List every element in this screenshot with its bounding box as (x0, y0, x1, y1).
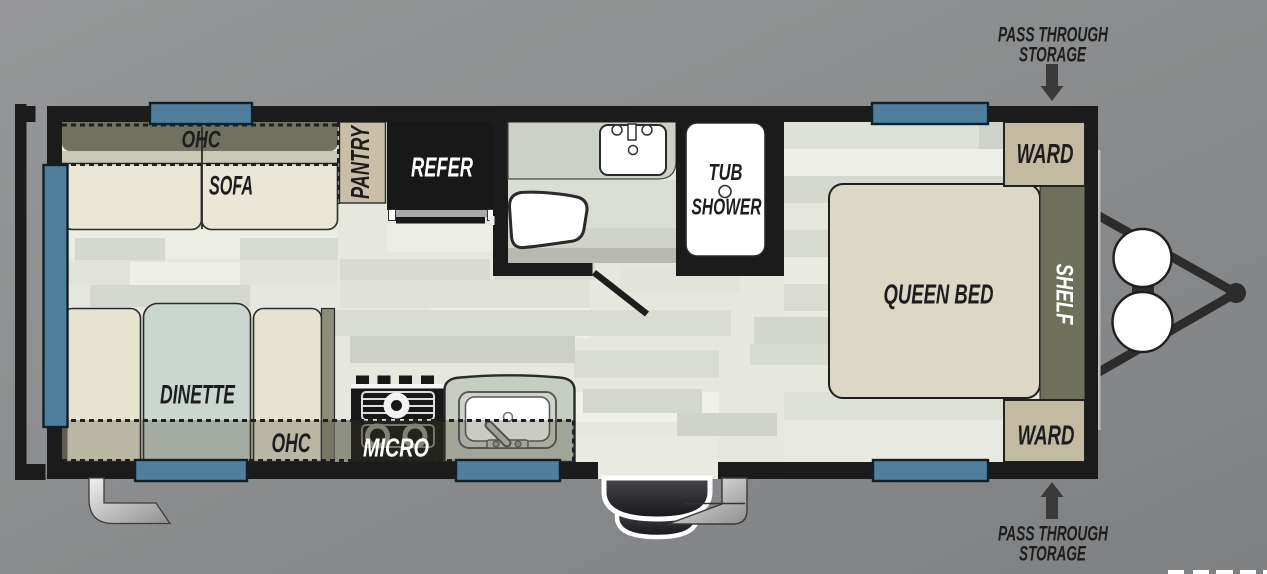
svg-text:OHC: OHC (272, 428, 312, 458)
svg-text:SHELF: SHELF (1051, 264, 1078, 326)
svg-text:SOFA: SOFA (209, 171, 253, 201)
svg-text:WARD: WARD (1017, 138, 1074, 169)
svg-text:TUB: TUB (709, 159, 743, 185)
svg-text:QUEEN BED: QUEEN BED (884, 279, 994, 310)
svg-text:STORAGE: STORAGE (1019, 44, 1087, 67)
svg-text:DINETTE: DINETTE (160, 380, 236, 410)
svg-text:REFER: REFER (411, 152, 474, 183)
svg-text:OHC: OHC (182, 127, 221, 154)
svg-text:PANTRY: PANTRY (345, 124, 375, 199)
svg-text:WARD: WARD (1018, 420, 1075, 451)
svg-text:STORAGE: STORAGE (1019, 543, 1087, 566)
svg-text:MICRO: MICRO (363, 433, 429, 463)
svg-text:SHOWER: SHOWER (692, 194, 762, 220)
